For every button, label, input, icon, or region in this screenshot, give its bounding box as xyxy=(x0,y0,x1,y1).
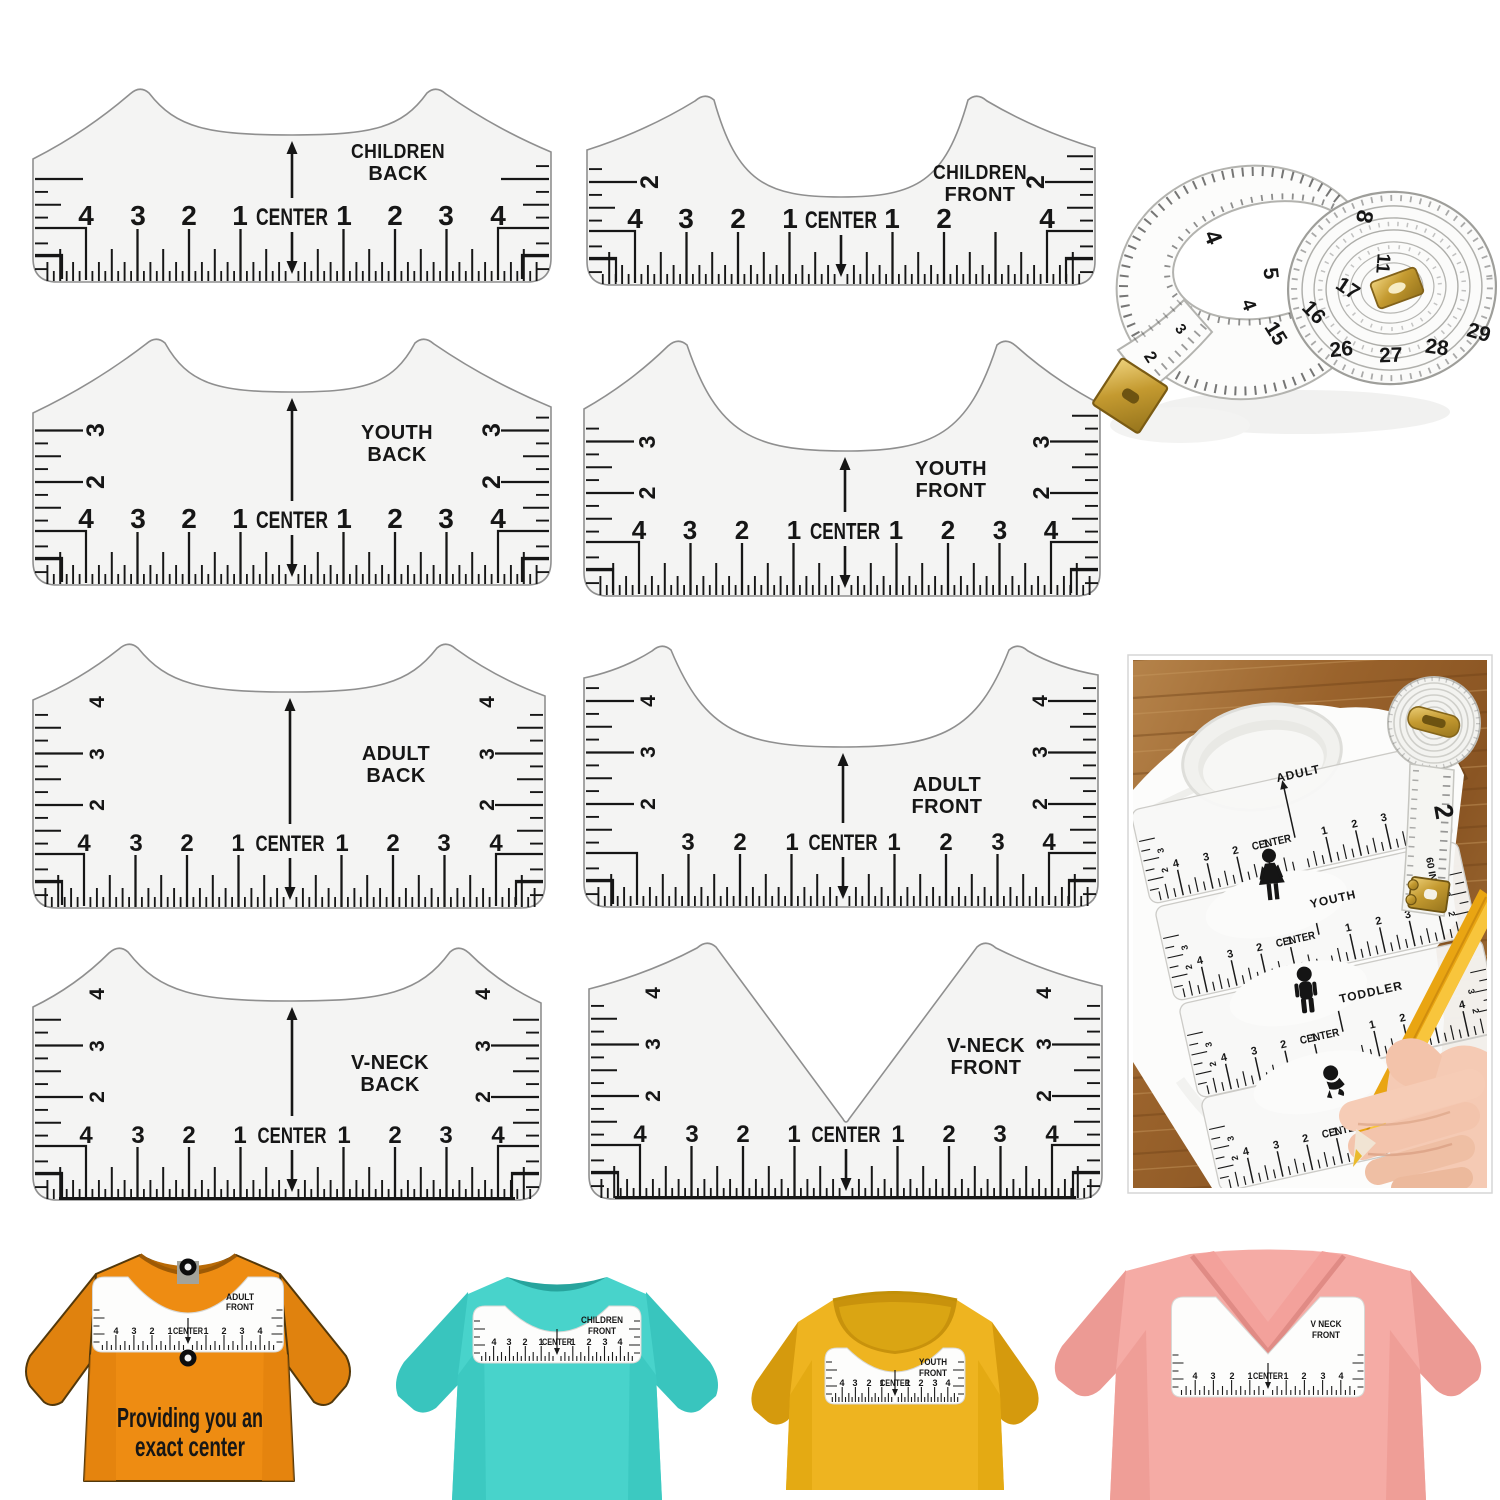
svg-text:3: 3 xyxy=(131,1122,144,1149)
svg-text:3: 3 xyxy=(506,1337,511,1347)
svg-text:CHILDREN: CHILDREN xyxy=(933,162,1027,184)
svg-text:3: 3 xyxy=(1028,436,1054,449)
svg-text:FRONT: FRONT xyxy=(1312,1330,1340,1341)
svg-text:3: 3 xyxy=(438,200,454,231)
svg-text:3: 3 xyxy=(1320,1371,1325,1381)
svg-text:2: 2 xyxy=(637,798,660,810)
svg-text:4: 4 xyxy=(490,200,506,231)
svg-text:BACK: BACK xyxy=(367,444,427,466)
svg-text:3: 3 xyxy=(130,503,146,534)
svg-text:1: 1 xyxy=(233,1122,246,1149)
svg-text:2: 2 xyxy=(86,1091,109,1103)
svg-text:BACK: BACK xyxy=(360,1074,420,1096)
svg-text:2: 2 xyxy=(730,203,746,234)
svg-text:2: 2 xyxy=(386,830,399,857)
svg-text:27: 27 xyxy=(1379,344,1403,368)
svg-text:YOUTH: YOUTH xyxy=(361,422,433,444)
svg-text:4: 4 xyxy=(632,515,647,545)
svg-text:4: 4 xyxy=(86,696,109,708)
svg-text:3: 3 xyxy=(239,1326,244,1336)
svg-text:1: 1 xyxy=(889,515,903,545)
svg-text:4: 4 xyxy=(1033,987,1056,999)
svg-text:2: 2 xyxy=(866,1378,871,1388)
svg-text:2: 2 xyxy=(586,1337,591,1347)
svg-text:26: 26 xyxy=(1329,337,1355,362)
svg-text:4: 4 xyxy=(491,1337,496,1347)
svg-text:1: 1 xyxy=(1247,1371,1252,1381)
svg-text:2: 2 xyxy=(478,475,506,489)
svg-text:1: 1 xyxy=(336,503,352,534)
svg-text:3: 3 xyxy=(86,1040,109,1052)
svg-text:1: 1 xyxy=(335,830,348,857)
svg-text:3: 3 xyxy=(472,1040,495,1052)
svg-text:2: 2 xyxy=(642,1090,665,1102)
svg-text:3: 3 xyxy=(685,1121,698,1148)
svg-text:BACK: BACK xyxy=(368,163,428,185)
svg-text:4: 4 xyxy=(945,1378,950,1388)
svg-text:4: 4 xyxy=(642,987,665,999)
svg-text:2: 2 xyxy=(736,1121,749,1148)
svg-text:4: 4 xyxy=(617,1337,622,1347)
svg-text:3: 3 xyxy=(634,436,660,449)
svg-text:CENTER: CENTER xyxy=(258,1123,327,1148)
svg-text:2: 2 xyxy=(936,203,952,234)
svg-text:1: 1 xyxy=(203,1326,208,1336)
svg-text:1: 1 xyxy=(785,829,798,856)
svg-text:4: 4 xyxy=(77,830,91,857)
svg-text:4: 4 xyxy=(79,1122,93,1149)
svg-text:2: 2 xyxy=(636,175,664,189)
svg-text:FRONT: FRONT xyxy=(226,1302,254,1313)
svg-text:2: 2 xyxy=(86,799,109,811)
svg-text:4: 4 xyxy=(1039,203,1055,234)
svg-text:3: 3 xyxy=(1210,1371,1215,1381)
svg-text:2: 2 xyxy=(941,515,955,545)
svg-text:1: 1 xyxy=(336,200,352,231)
svg-text:1: 1 xyxy=(887,829,900,856)
svg-text:3: 3 xyxy=(476,748,499,760)
svg-text:2: 2 xyxy=(472,1091,495,1103)
svg-text:4: 4 xyxy=(490,503,506,534)
svg-text:1: 1 xyxy=(337,1122,350,1149)
svg-text:FRONT: FRONT xyxy=(588,1326,616,1337)
svg-text:1: 1 xyxy=(231,830,244,857)
svg-text:3: 3 xyxy=(993,515,1007,545)
svg-text:2: 2 xyxy=(735,515,749,545)
svg-text:YOUTH: YOUTH xyxy=(915,458,987,480)
svg-text:2: 2 xyxy=(221,1326,226,1336)
svg-text:4: 4 xyxy=(1338,1371,1343,1381)
svg-text:CENTER: CENTER xyxy=(812,1122,881,1147)
svg-text:1: 1 xyxy=(787,515,801,545)
svg-text:4: 4 xyxy=(113,1326,118,1336)
svg-text:2: 2 xyxy=(1229,1371,1234,1381)
svg-text:2: 2 xyxy=(939,829,952,856)
svg-text:2: 2 xyxy=(182,1122,195,1149)
svg-text:3: 3 xyxy=(678,203,694,234)
svg-text:Providing you an: Providing you an xyxy=(117,1402,263,1433)
svg-text:3: 3 xyxy=(993,1121,1006,1148)
svg-text:4: 4 xyxy=(637,695,660,707)
svg-text:3: 3 xyxy=(82,423,110,437)
svg-text:CENTER: CENTER xyxy=(256,507,328,534)
svg-text:V-NECK: V-NECK xyxy=(351,1052,429,1074)
svg-text:2: 2 xyxy=(1028,487,1054,500)
svg-text:4: 4 xyxy=(472,988,495,1000)
svg-text:3: 3 xyxy=(1033,1038,1056,1050)
svg-text:3: 3 xyxy=(131,1326,136,1336)
svg-text:11: 11 xyxy=(1371,253,1393,275)
svg-text:4: 4 xyxy=(1042,829,1056,856)
svg-text:BACK: BACK xyxy=(366,765,426,787)
svg-text:3: 3 xyxy=(637,746,660,758)
svg-text:ADULT: ADULT xyxy=(913,774,981,796)
svg-text:1: 1 xyxy=(891,1121,904,1148)
svg-text:4: 4 xyxy=(1192,1371,1197,1381)
svg-text:1: 1 xyxy=(232,200,248,231)
svg-text:CHILDREN: CHILDREN xyxy=(581,1315,623,1326)
svg-text:4: 4 xyxy=(78,200,94,231)
svg-text:3: 3 xyxy=(642,1038,665,1050)
svg-text:4: 4 xyxy=(1045,1121,1059,1148)
svg-text:2: 2 xyxy=(388,1122,401,1149)
svg-text:CENTER: CENTER xyxy=(256,204,328,231)
svg-text:1: 1 xyxy=(782,203,798,234)
svg-text:2: 2 xyxy=(918,1378,923,1388)
svg-text:4: 4 xyxy=(1044,515,1059,545)
svg-text:FRONT: FRONT xyxy=(916,480,987,502)
svg-text:FRONT: FRONT xyxy=(912,796,983,818)
svg-text:V NECK: V NECK xyxy=(1311,1319,1342,1330)
svg-text:3: 3 xyxy=(852,1378,857,1388)
svg-text:FRONT: FRONT xyxy=(951,1057,1022,1079)
svg-text:2: 2 xyxy=(1033,1090,1056,1102)
svg-text:2: 2 xyxy=(634,487,660,500)
svg-text:2: 2 xyxy=(942,1121,955,1148)
svg-text:4: 4 xyxy=(491,1122,505,1149)
svg-text:2: 2 xyxy=(522,1337,527,1347)
svg-text:4: 4 xyxy=(78,503,94,534)
svg-text:exact center: exact center xyxy=(135,1431,245,1462)
svg-text:3: 3 xyxy=(86,748,109,760)
svg-text:4: 4 xyxy=(257,1326,262,1336)
svg-text:2: 2 xyxy=(149,1326,154,1336)
svg-text:2: 2 xyxy=(181,503,197,534)
svg-text:3: 3 xyxy=(932,1378,937,1388)
svg-text:2: 2 xyxy=(181,200,197,231)
svg-text:3: 3 xyxy=(602,1337,607,1347)
svg-text:V-NECK: V-NECK xyxy=(947,1035,1025,1057)
svg-text:2: 2 xyxy=(387,200,403,231)
svg-text:2: 2 xyxy=(82,475,110,489)
svg-text:28: 28 xyxy=(1424,335,1451,361)
svg-text:FRONT: FRONT xyxy=(945,184,1016,206)
svg-text:CHILDREN: CHILDREN xyxy=(351,141,445,163)
svg-text:2: 2 xyxy=(476,799,499,811)
svg-text:2: 2 xyxy=(387,503,403,534)
svg-text:1: 1 xyxy=(232,503,248,534)
svg-text:CENTER: CENTER xyxy=(810,518,880,544)
svg-text:4: 4 xyxy=(489,830,503,857)
svg-text:FRONT: FRONT xyxy=(919,1368,947,1379)
svg-text:2: 2 xyxy=(1301,1371,1306,1381)
svg-text:ADULT: ADULT xyxy=(362,743,430,765)
svg-text:3: 3 xyxy=(991,829,1004,856)
svg-text:3: 3 xyxy=(130,200,146,231)
svg-text:CENTER: CENTER xyxy=(256,831,325,856)
svg-text:4: 4 xyxy=(633,1121,647,1148)
svg-text:1: 1 xyxy=(1283,1371,1288,1381)
svg-text:4: 4 xyxy=(476,696,499,708)
svg-text:CENTER: CENTER xyxy=(805,207,877,234)
svg-text:2: 2 xyxy=(1029,798,1052,810)
svg-text:1: 1 xyxy=(787,1121,800,1148)
svg-text:4: 4 xyxy=(839,1378,844,1388)
svg-text:3: 3 xyxy=(1029,746,1052,758)
svg-text:3: 3 xyxy=(438,503,454,534)
svg-text:3: 3 xyxy=(437,830,450,857)
svg-text:3: 3 xyxy=(439,1122,452,1149)
svg-text:3: 3 xyxy=(683,515,697,545)
svg-text:4: 4 xyxy=(86,988,109,1000)
svg-text:4: 4 xyxy=(627,203,643,234)
svg-text:CENTER: CENTER xyxy=(809,830,878,855)
svg-text:4: 4 xyxy=(1029,695,1052,707)
svg-text:2: 2 xyxy=(733,829,746,856)
svg-text:2: 2 xyxy=(180,830,193,857)
svg-text:3: 3 xyxy=(478,423,506,437)
svg-text:YOUTH: YOUTH xyxy=(919,1357,947,1368)
svg-text:3: 3 xyxy=(129,830,142,857)
svg-text:1: 1 xyxy=(167,1326,172,1336)
svg-text:1: 1 xyxy=(884,203,900,234)
svg-text:3: 3 xyxy=(681,829,694,856)
